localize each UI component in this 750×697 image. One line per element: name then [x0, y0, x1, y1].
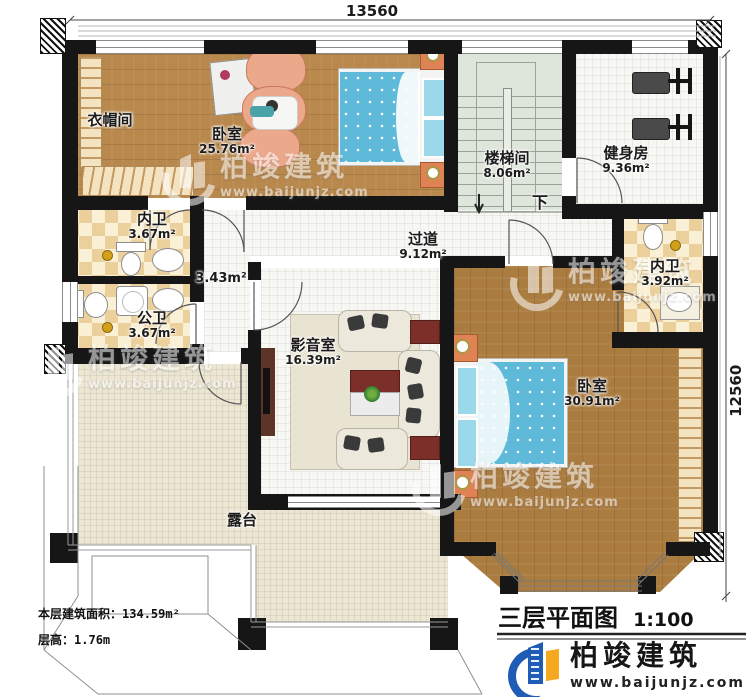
dimension-top-label: 13560: [346, 2, 398, 20]
brand-logo-icon: [510, 255, 560, 307]
room-label-ensuite2: 内卫 3.92m²: [641, 258, 688, 288]
room-label-ensuite1: 内卫 3.67m²: [128, 211, 175, 241]
room-label-stairwell: 楼梯间 8.06m²: [483, 150, 530, 180]
room-label-terrace: 露台: [227, 512, 257, 529]
dimension-right-label: 12560: [727, 365, 745, 417]
footer-brand: 柏竣建筑 www.baijunjz.com: [508, 642, 745, 696]
terrace-railings: [68, 364, 448, 627]
brand-logo-icon: [162, 150, 212, 202]
room-label-cloakroom: 衣帽间: [87, 112, 132, 129]
room-label-bedroom2: 卧室 30.91m²: [564, 378, 620, 408]
floor-area-note: 本层建筑面积：134.59m²: [38, 605, 180, 622]
stair-down-label: 下: [532, 194, 548, 212]
brand-logo-icon: [30, 342, 80, 394]
brand-logo-icon: [412, 460, 462, 512]
brand-website: www.baijunjz.com: [570, 675, 745, 691]
room-label-media: 影音室 16.39m²: [285, 337, 341, 367]
watermark-2: 柏竣建筑 www.baijunjz.com: [30, 342, 237, 394]
watermark-1: 柏竣建筑 www.baijunjz.com: [162, 150, 369, 202]
watermark-4: 柏竣建筑 www.baijunjz.com: [412, 460, 619, 512]
plan-title: 三层平面图: [498, 604, 618, 632]
room-label-nook: 3.43m²: [195, 272, 246, 286]
brand-name: 柏竣建筑: [570, 642, 745, 670]
room-label-gym: 健身房 9.36m²: [602, 145, 649, 175]
plan-title-block: 三层平面图 1:100: [498, 598, 694, 633]
room-label-corridor: 过道 9.12m²: [399, 231, 446, 261]
room-label-publicbath: 公卫 3.67m²: [128, 310, 175, 340]
floor-height-note: 层高：1.76m: [38, 631, 110, 648]
room-label-bedroom1: 卧室 25.76m²: [199, 126, 255, 156]
brand-logo-icon: [508, 642, 562, 696]
bay-window: [454, 549, 710, 594]
floor-plan-canvas: 13560 12560 衣帽间 卧室 25.76m² 楼梯间 8.06m² 健身…: [0, 0, 750, 697]
plan-scale: 1:100: [633, 609, 693, 631]
